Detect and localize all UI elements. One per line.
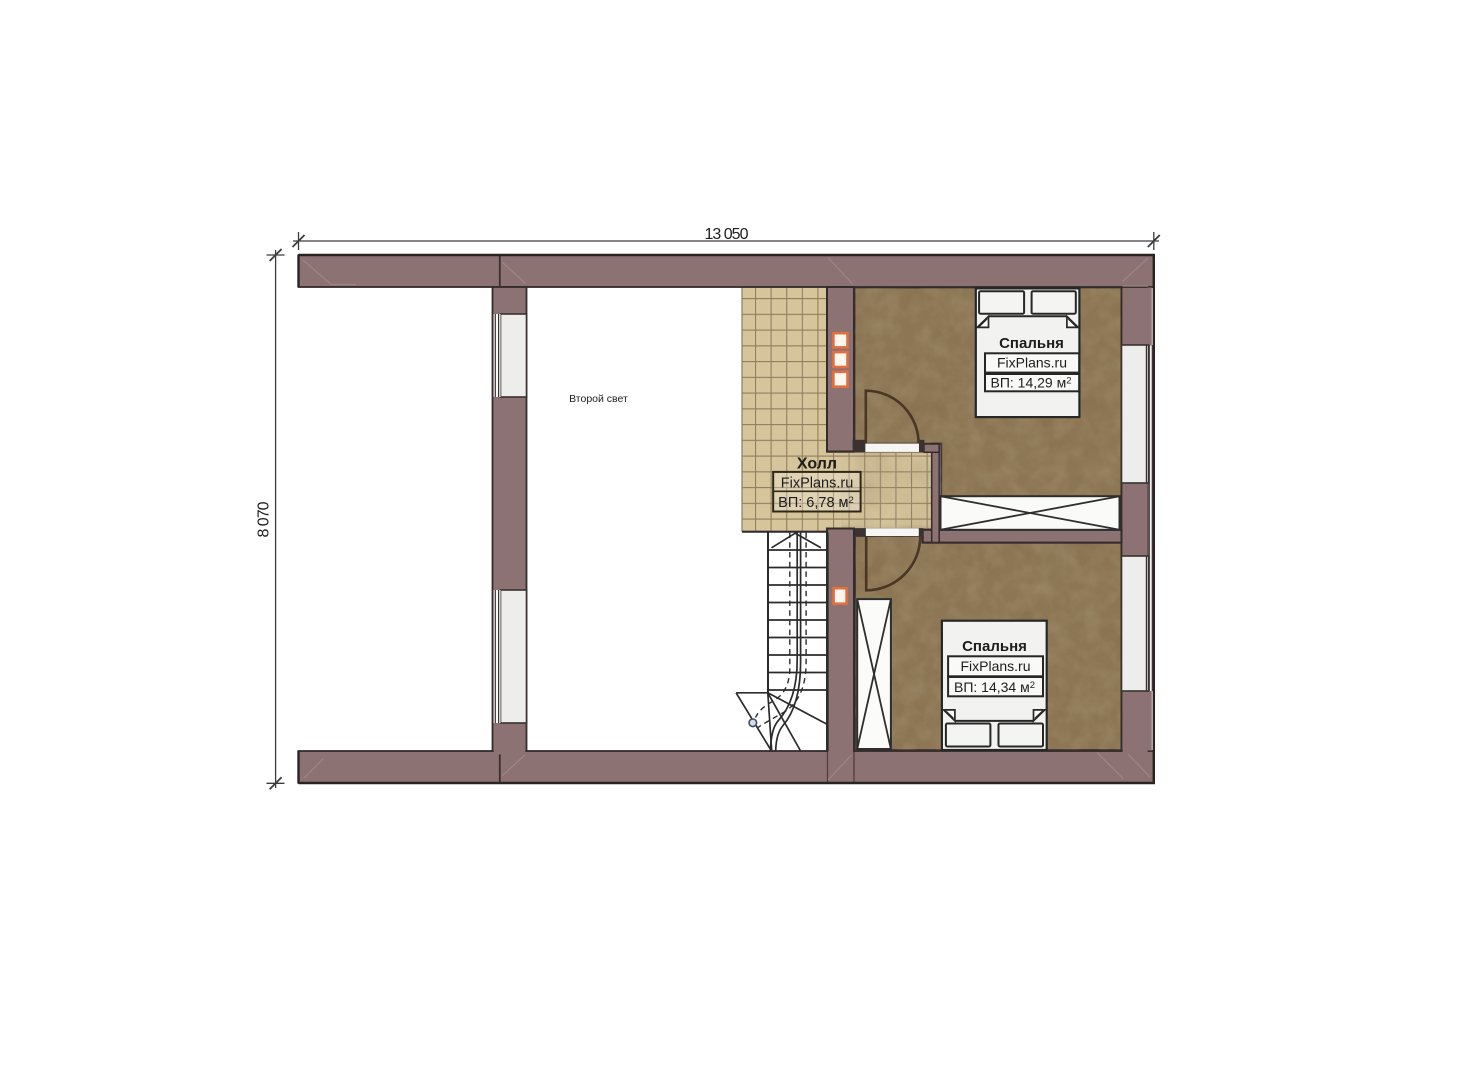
svg-text:ВП: 14,34 м2: ВП: 14,34 м2 bbox=[954, 679, 1035, 695]
svg-text:FixPlans.ru: FixPlans.ru bbox=[997, 355, 1067, 371]
svg-text:FixPlans.ru: FixPlans.ru bbox=[781, 475, 854, 491]
svg-text:FixPlans.ru: FixPlans.ru bbox=[960, 658, 1030, 674]
svg-text:ВП: 6,78 м2: ВП: 6,78 м2 bbox=[778, 495, 854, 511]
svg-text:Второй свет: Второй свет bbox=[569, 393, 628, 405]
svg-text:Спальня: Спальня bbox=[999, 335, 1064, 352]
svg-text:Спальня: Спальня bbox=[962, 638, 1027, 655]
svg-text:13 050: 13 050 bbox=[705, 226, 749, 243]
svg-text:ВП: 14,29 м2: ВП: 14,29 м2 bbox=[990, 375, 1071, 391]
svg-text:8 070: 8 070 bbox=[256, 501, 273, 537]
svg-text:Холл: Холл bbox=[797, 456, 837, 473]
